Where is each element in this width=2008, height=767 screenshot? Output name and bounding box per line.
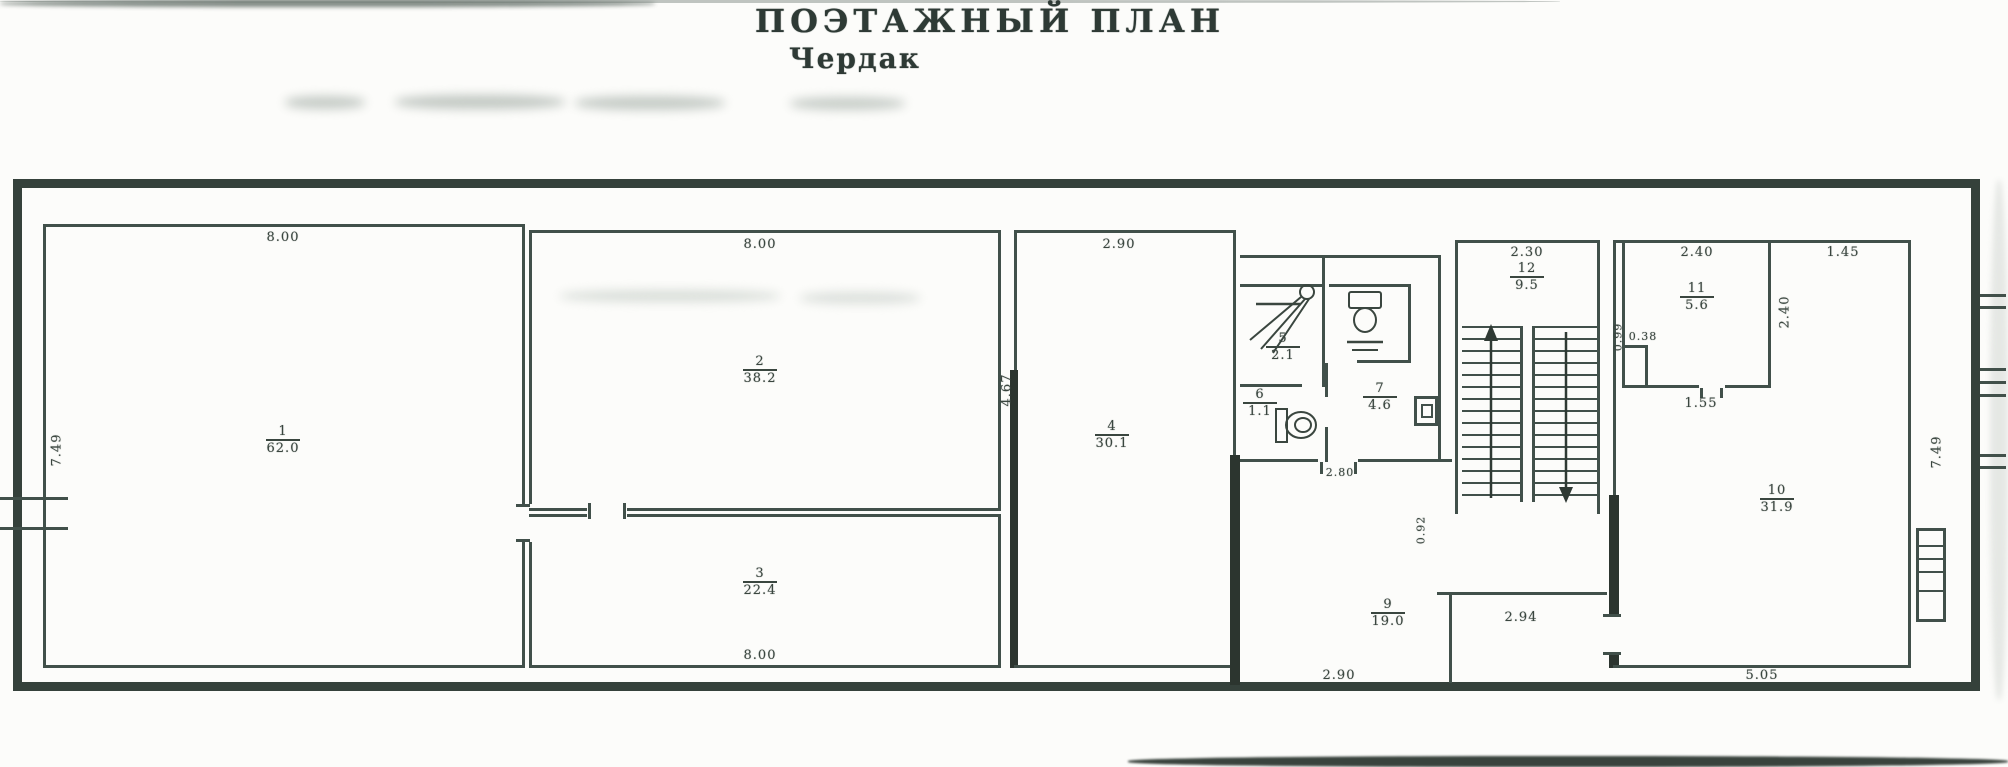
- room-3-label: 322.4: [743, 567, 777, 597]
- dim-under-stairs: 2.94: [1505, 610, 1538, 625]
- toilet-icon: [1276, 409, 1316, 442]
- dim-top-bay: 1.45: [1827, 245, 1860, 260]
- floor-plan: 162.0238.2322.4430.152.161.174.6919.0103…: [0, 0, 2008, 767]
- dim-room11-right: 2.40: [1778, 296, 1793, 329]
- dim-stair-passage: 0.92: [1415, 516, 1428, 545]
- dim-room11-notch-a: 0.99: [1612, 323, 1625, 352]
- dim-top-room4: 2.90: [1103, 237, 1136, 252]
- dim-room2-height: 4.67: [1000, 374, 1015, 407]
- room-4-label: 430.1: [1095, 420, 1129, 450]
- room-5-shower-label: 52.1: [1266, 332, 1300, 362]
- dim-bottom-room9: 2.90: [1323, 668, 1356, 683]
- dim-bottom-room10: 5.05: [1746, 668, 1779, 683]
- dim-bath-door: 2.80: [1326, 466, 1355, 479]
- room-9-label: 919.0: [1371, 598, 1405, 628]
- stair-up-arrow: [1484, 324, 1498, 498]
- room-10-label: 1031.9: [1760, 484, 1794, 514]
- room-6-wc-label: 61.1: [1243, 388, 1277, 418]
- dim-room11-notch-b: 0.38: [1629, 330, 1658, 343]
- dim-right-height: 7.49: [1930, 436, 1945, 469]
- dim-top-room11: 2.40: [1681, 245, 1714, 260]
- room-12-stairs-label: 129.5: [1510, 262, 1544, 292]
- stair-down-arrow: [1559, 332, 1573, 503]
- dim-room11-bottom: 1.55: [1685, 396, 1718, 411]
- scanned-floor-plan-page: ПОЭТАЖНЫЙ ПЛАН Чердак: [0, 0, 2008, 767]
- dim-top-stairs: 2.30: [1511, 245, 1544, 260]
- room-11-label: 115.6: [1680, 282, 1714, 312]
- dim-top-room2: 8.00: [744, 237, 777, 252]
- room-2-label: 238.2: [743, 355, 777, 385]
- dim-top-room1: 8.00: [267, 230, 300, 245]
- dim-left-height: 7.49: [50, 434, 65, 467]
- dim-bottom-room3: 8.00: [744, 648, 777, 663]
- room-1-label: 162.0: [266, 425, 300, 455]
- room-7-label: 74.6: [1363, 382, 1397, 412]
- toilet-icon: [1347, 292, 1383, 350]
